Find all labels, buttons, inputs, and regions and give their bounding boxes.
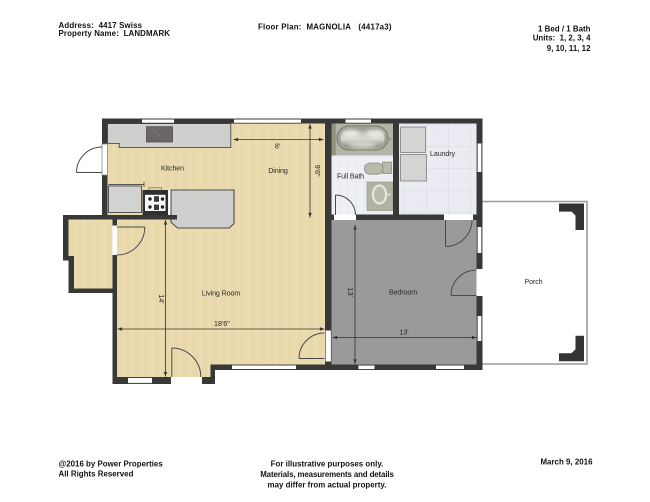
- svg-text:Living Room: Living Room: [202, 290, 241, 298]
- svg-text:may differ from actual propert: may differ from actual property.: [268, 481, 387, 490]
- svg-text:For illustrative purposes only: For illustrative purposes only.: [271, 460, 384, 469]
- svg-text:All Rights Reserved: All Rights Reserved: [59, 469, 134, 478]
- svg-text:9'6": 9'6": [313, 165, 321, 177]
- svg-text:Property Name: LANDMARK: Property Name: LANDMARK: [59, 29, 171, 38]
- svg-text:13': 13': [346, 288, 354, 297]
- svg-text:March 9, 2016: March 9, 2016: [540, 458, 593, 467]
- svg-text:Units: 1, 2, 3, 4: Units: 1, 2, 3, 4: [533, 34, 591, 43]
- svg-text:Kitchen: Kitchen: [161, 165, 184, 173]
- svg-text:18'6": 18'6": [214, 320, 230, 328]
- svg-text:Materials, measurements and de: Materials, measurements and details: [260, 470, 394, 479]
- svg-text:@2016 by Power Properties: @2016 by Power Properties: [59, 460, 164, 469]
- svg-text:9, 10, 11, 12: 9, 10, 11, 12: [547, 44, 591, 53]
- svg-text:13': 13': [399, 329, 408, 337]
- svg-text:14': 14': [157, 294, 165, 303]
- svg-text:8': 8': [275, 142, 280, 150]
- svg-text:Laundry: Laundry: [430, 150, 455, 158]
- svg-text:Bedroom: Bedroom: [389, 288, 417, 296]
- svg-text:Dining: Dining: [268, 167, 288, 175]
- svg-text:Floor Plan: MAGNOLIA (4417a: Floor Plan: MAGNOLIA (4417a3): [258, 23, 392, 32]
- svg-text:Porch: Porch: [524, 278, 542, 286]
- svg-text:1 Bed / 1 Bath: 1 Bed / 1 Bath: [538, 24, 591, 33]
- svg-text:Full Bath: Full Bath: [337, 173, 364, 181]
